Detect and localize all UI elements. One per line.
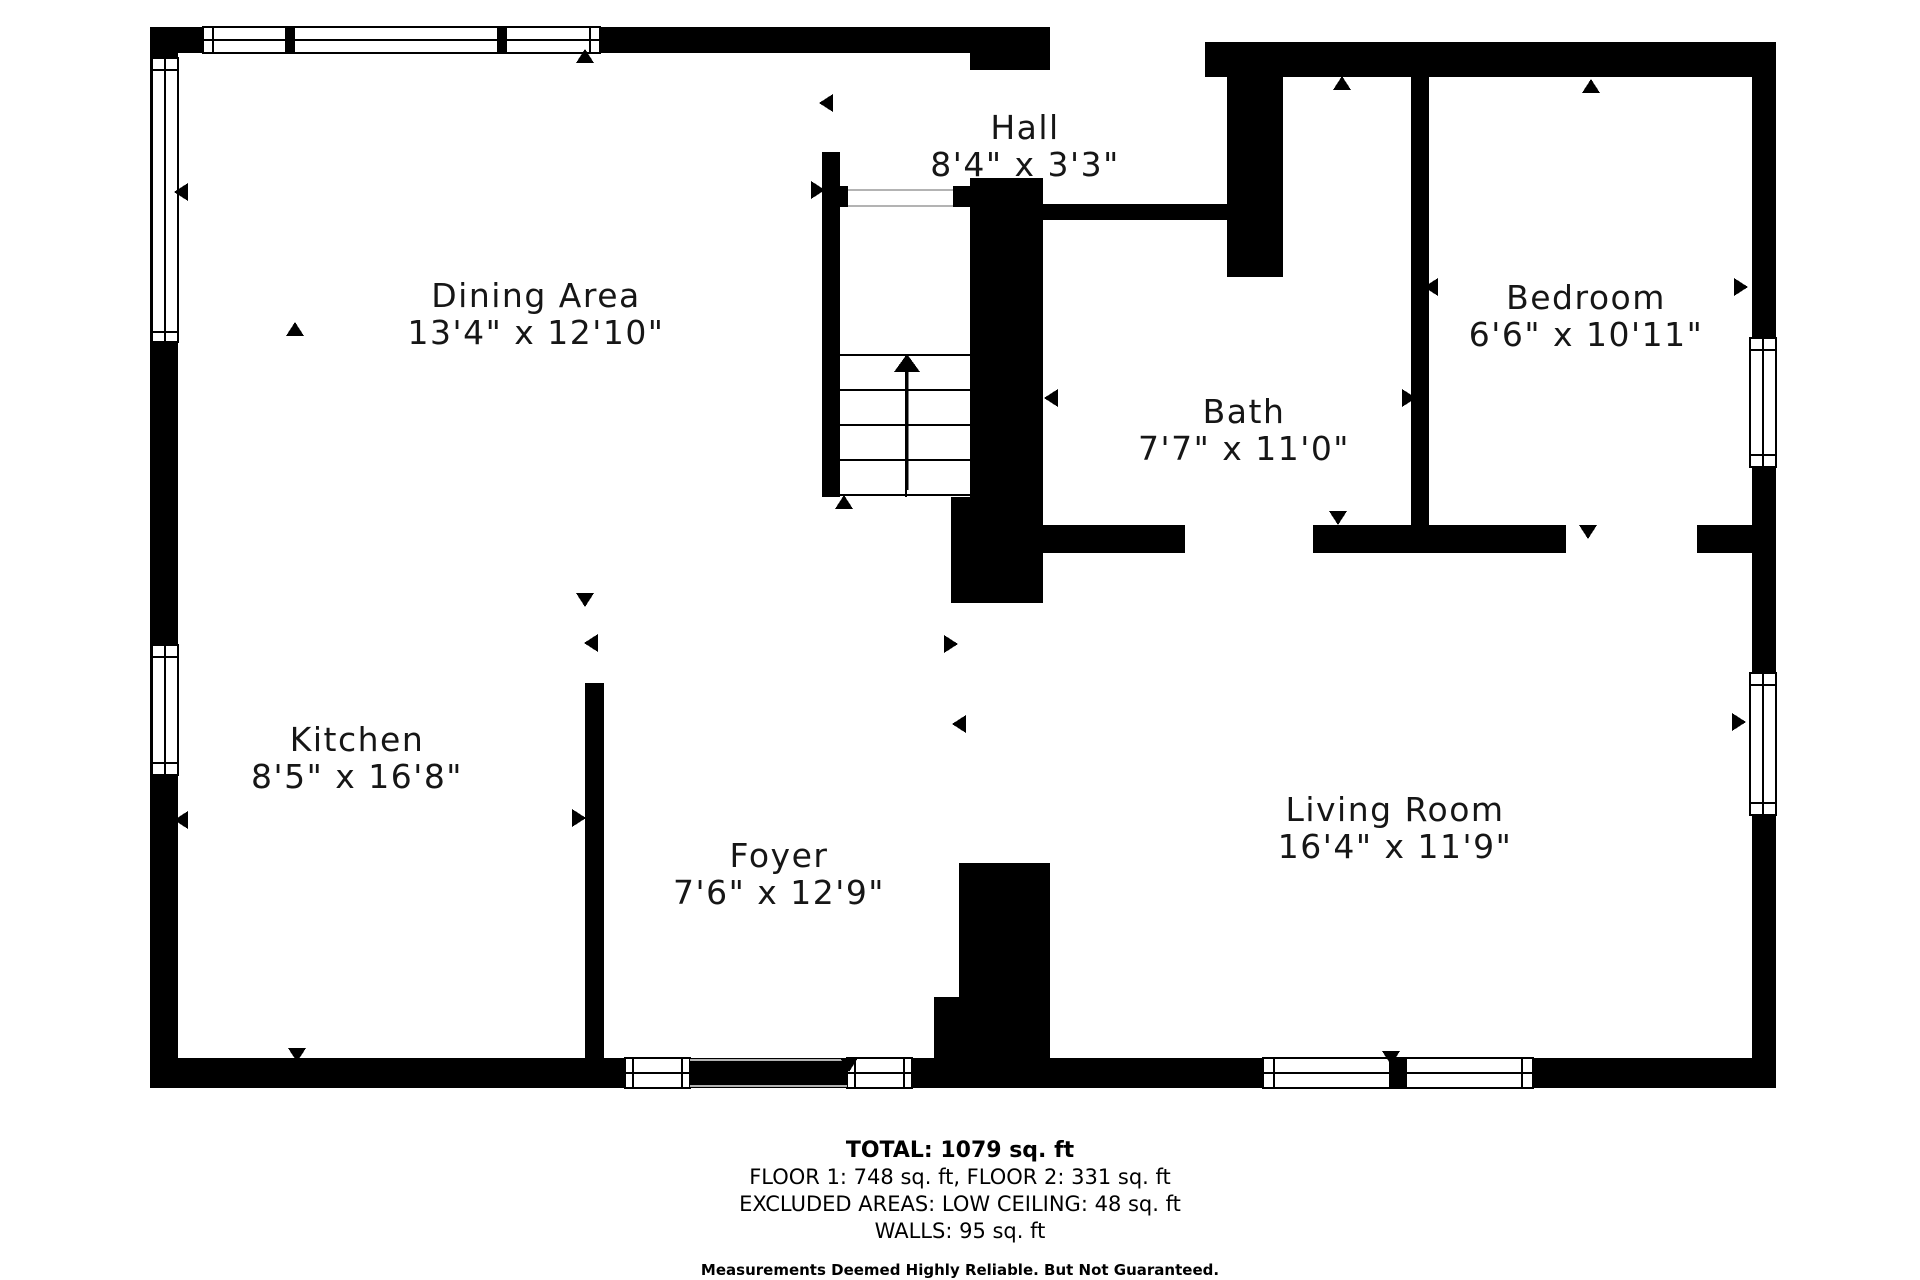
floor-areas-text: FLOOR 1: 748 sq. ft, FLOOR 2: 331 sq. ft [0,1164,1920,1191]
room-name: Kitchen [251,721,463,758]
room-dimensions: 13'4" x 12'10" [408,314,665,351]
door-arrow-icon [835,495,853,509]
door-arrow-icon [1734,278,1748,296]
room-label-bedroom: Bedroom6'6" x 10'11" [1469,279,1703,353]
door-arrow-icon [819,94,833,112]
stair-up-arrow-icon [894,354,920,372]
door-arrow-icon [572,809,586,827]
wall-segment [934,997,959,1058]
floor-plan-canvas [0,0,1920,1280]
wall-segment [585,683,604,1058]
door-arrow-icon [1732,713,1746,731]
walls-area-text: WALLS: 95 sq. ft [0,1218,1920,1245]
room-name: Living Room [1278,791,1512,828]
room-dimensions: 8'4" x 3'3" [930,146,1120,183]
room-dimensions: 7'7" x 11'0" [1138,430,1350,467]
room-name: Dining Area [408,277,665,314]
door-arrow-icon [1044,389,1058,407]
room-dimensions: 6'6" x 10'11" [1469,316,1703,353]
wall-segment [1697,525,1752,553]
door-arrow-icon [584,634,598,652]
floor-plan-page: Dining Area13'4" x 12'10"Hall8'4" x 3'3"… [0,0,1920,1280]
wall-segment [1227,77,1283,277]
wall-segment [1043,525,1185,553]
wall-segment [1752,42,1776,1088]
room-label-foyer: Foyer7'6" x 12'9" [673,837,885,911]
wall-segment [840,186,848,207]
room-label-dining-area: Dining Area13'4" x 12'10" [408,277,665,351]
wall-segment [1043,204,1227,220]
window-mullion [285,27,295,53]
room-dimensions: 7'6" x 12'9" [673,874,885,911]
door-arrow-icon [944,635,958,653]
wall-segment [970,178,1043,603]
room-dimensions: 8'5" x 16'8" [251,758,463,795]
area-summary: TOTAL: 1079 sq. ft FLOOR 1: 748 sq. ft, … [0,1138,1920,1279]
door-arrow-icon [576,593,594,607]
wall-segment [1411,77,1429,553]
room-name: Hall [930,109,1120,146]
door-arrow-icon [1582,79,1600,93]
room-dimensions: 16'4" x 11'9" [1278,828,1512,865]
room-label-bath: Bath7'7" x 11'0" [1138,393,1350,467]
room-name: Bath [1138,393,1350,430]
window-mullion [497,27,507,53]
wall-segment [1205,42,1776,77]
room-name: Foyer [673,837,885,874]
disclaimer-text: Measurements Deemed Highly Reliable. But… [0,1261,1920,1279]
wall-segment [951,497,970,603]
excluded-areas-text: EXCLUDED AREAS: LOW CEILING: 48 sq. ft [0,1191,1920,1218]
door-arrow-icon [1329,511,1347,525]
door-arrow-icon [1579,525,1597,539]
wall-segment [822,152,840,497]
room-name: Bedroom [1469,279,1703,316]
door-arrow-icon [952,715,966,733]
wall-segment [953,186,970,207]
wall-segment [970,27,1050,70]
door-arrow-icon [286,322,304,336]
room-label-hall: Hall8'4" x 3'3" [930,109,1120,183]
total-area-text: TOTAL: 1079 sq. ft [0,1138,1920,1164]
wall-segment [1313,525,1411,553]
room-label-living-room: Living Room16'4" x 11'9" [1278,791,1512,865]
door-arrow-icon [1333,76,1351,90]
room-label-kitchen: Kitchen8'5" x 16'8" [251,721,463,795]
wall-segment [1429,525,1566,553]
wall-segment [959,863,1050,1058]
